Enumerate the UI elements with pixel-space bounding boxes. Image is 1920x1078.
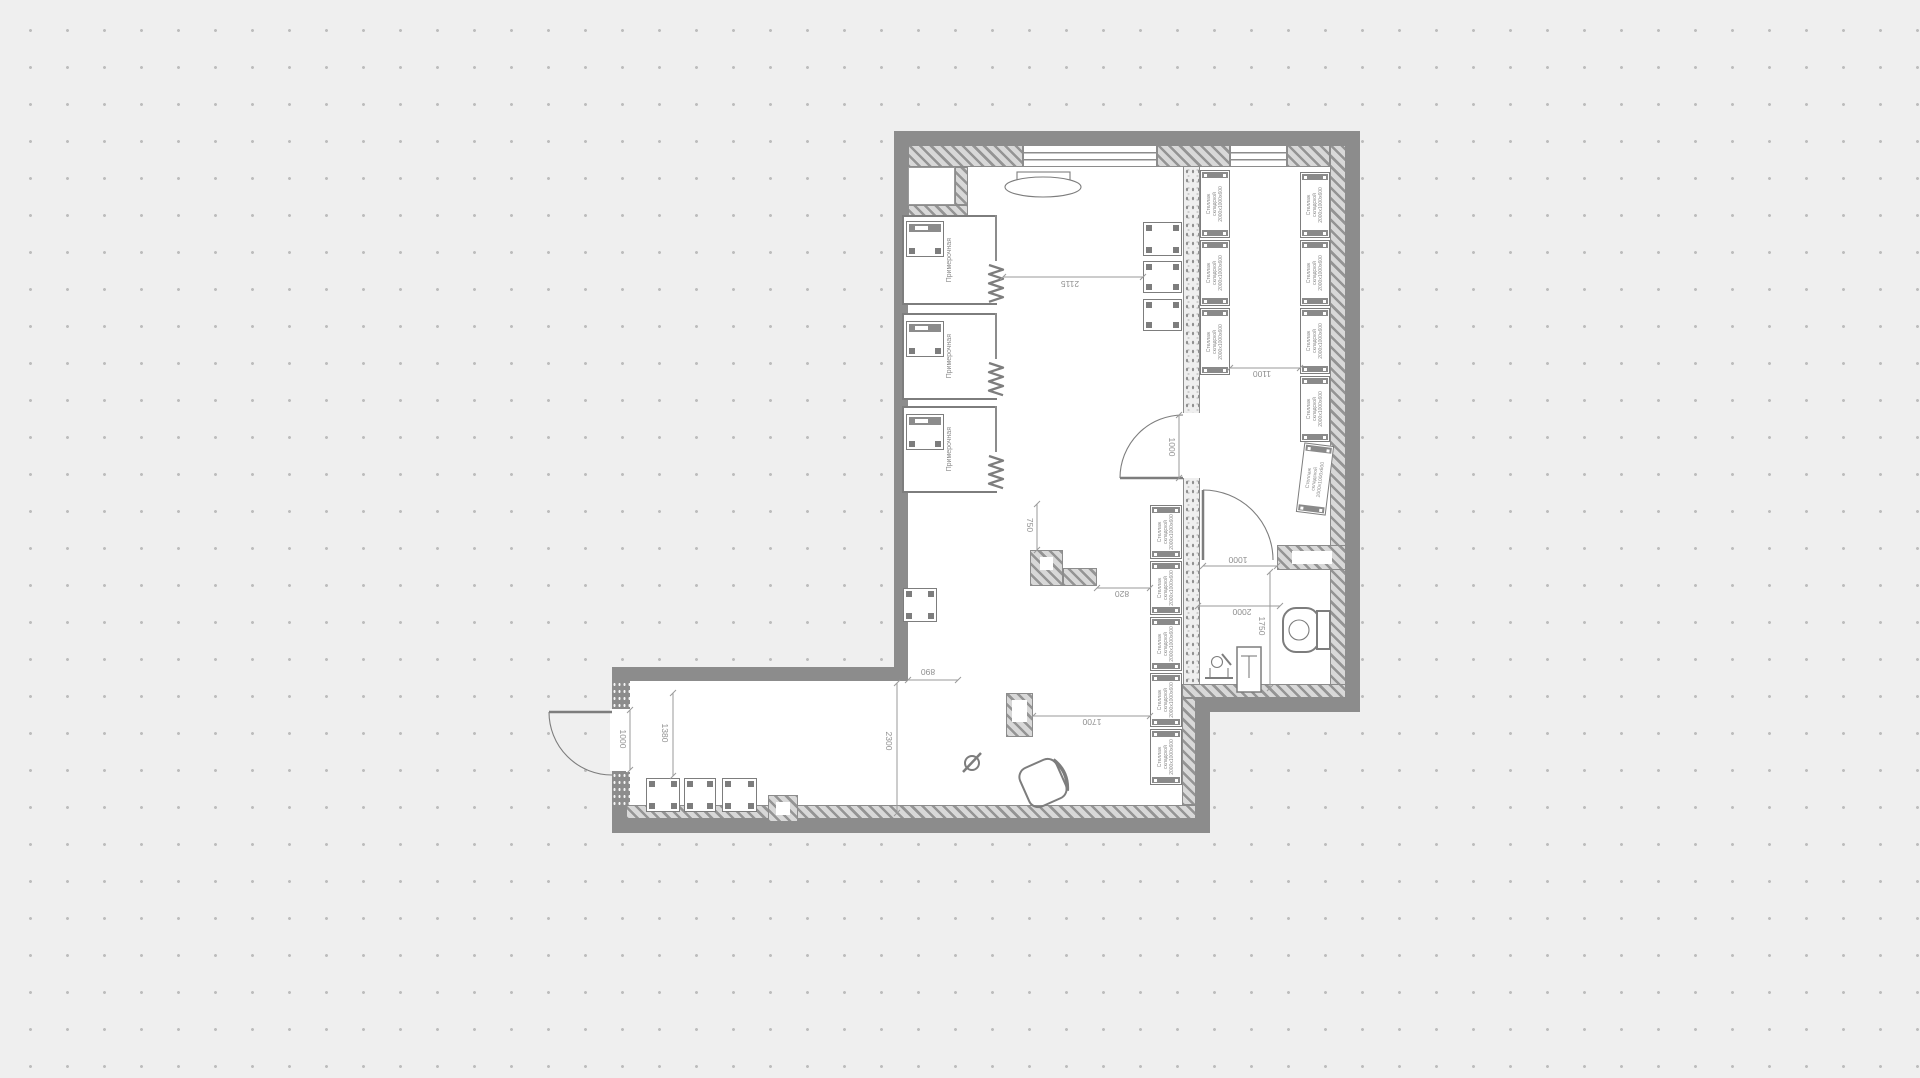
wing-table [722,778,757,812]
floor-plan: Стол для проверки товара Стол для провер… [0,0,1920,1078]
table-corner [725,803,731,809]
shelf-end-cap [1152,551,1180,557]
storage-shelf-label: Стеллаж складской 2000х1000х600 [1306,391,1324,427]
entry-pier-bottom [612,772,630,805]
storage-shelf-unit: Стеллаж складской 2000х1000х600 [1300,308,1330,374]
table-corner [687,803,693,809]
table-corner [928,613,934,619]
table-corner [935,348,941,354]
storage-shelf-unit: Стеллаж складской 2000х1000х600 [1150,673,1182,727]
storage-shelf-label: Стеллаж складской 2000х1000х600 [1157,570,1175,606]
entry-door-arc [549,712,612,775]
storage-shelf-label: Стеллаж складской 2000х1000х600 [1157,514,1175,550]
storage-shelf-label: Стеллаж складской 2000х1000х600 [1306,187,1324,223]
table-corner [935,441,941,447]
storage-shelf-label: Стеллаж складской 2000х1000х600 [1157,739,1175,775]
bench-seat-bar [909,324,941,332]
bench-seat-bar [909,417,941,425]
shelf-end-cap [1202,298,1228,304]
shelf-end-cap [1302,310,1328,316]
table-corner [909,348,915,354]
shelf-end-cap [1152,607,1180,613]
shelf-end-cap [1302,298,1328,304]
storage-shelf-label: Стеллаж складской 2000х1000х600 [1306,323,1324,359]
storage-shelf-label: Стеллаж складской 2000х1000х600 [1157,626,1175,662]
storage-shelf-label: Стеллаж складской 2000х1000х600 [1206,255,1224,291]
partition-lower [1183,478,1200,684]
fitting-room-right-wall [995,313,997,359]
shelf-end-cap [1305,445,1332,454]
fitting-bench [906,321,944,357]
storage-shelf-unit: Стеллаж складской 2000х1000х600 [1300,240,1330,306]
dimension-label: 1000 [618,730,628,749]
shelf-end-cap [1202,230,1228,236]
table-corner [748,803,754,809]
column-check-hole [1040,557,1053,570]
shelf-end-cap [1152,719,1180,725]
wall-wing-right [1196,698,1210,819]
partition-upper [1183,167,1200,413]
table-corner [1146,322,1152,328]
wall-lining-bottom-right [1182,684,1346,698]
check-table-seat [903,588,937,622]
entry-pier-top [612,681,630,709]
table-corner [1146,302,1152,308]
storage-shelf-unit: Стеллаж складской 2000х1000х600 [1200,308,1230,375]
dimension-label: 1380 [660,724,670,743]
table-corner [707,803,713,809]
table-corner [707,781,713,787]
shelf-end-cap [1302,378,1328,384]
wall-bottom-right-section [1196,698,1360,712]
wall-lining-top-2 [1157,145,1230,167]
shelf-end-cap [1152,507,1180,513]
window-1 [1023,145,1157,167]
storage-shelf-unit: Стеллаж складской 2000х1000х600 [1150,561,1182,615]
window-2 [1230,145,1287,167]
column-wing-hole [776,802,790,815]
table-corner [1173,302,1179,308]
table-corner [906,613,912,619]
shelf-end-cap [1302,242,1328,248]
table-corner [1173,322,1179,328]
shelf-end-cap [1152,675,1180,681]
table-corner [909,441,915,447]
toilet-wall-inset [1292,551,1332,564]
table-corner [909,248,915,254]
dimension-label: 1750 [1257,617,1267,636]
storage-shelf-unit: Стеллаж складской 2000х1000х600 [1300,172,1330,238]
fitting-room-label: Примерочная [946,334,954,378]
column-check-arm [1063,568,1097,586]
table-corner [725,781,731,787]
shelf-end-cap [1298,504,1325,513]
wing-table [646,778,680,812]
shelf-end-cap [1302,174,1328,180]
wall-wing-top [612,667,908,681]
table-corner [935,248,941,254]
shelf-end-cap [1202,242,1228,248]
table-corner [1173,225,1179,231]
storage-shelf-label: Стеллаж складской 2000х1000х600 [1157,682,1175,718]
storage-shelf-label: Стеллаж складской 2000х1000х600 [1304,460,1326,498]
display-table [1143,299,1182,331]
storage-shelf-label: Стеллаж складской 2000х1000х600 [1206,324,1224,360]
shelf-end-cap [1152,731,1180,737]
dimension-label: 2300 [884,732,894,751]
table-corner [906,591,912,597]
storage-shelf-unit: Стеллаж складской 2000х1000х600 [1150,617,1182,671]
table-corner [1146,284,1152,290]
table-corner [671,781,677,787]
dimension-label: 2115 [1061,279,1079,289]
wall-wing-bottom [612,819,1210,833]
table-corner [687,781,693,787]
wall-lining-wing-right [1182,698,1196,805]
fitting-room-right-wall [995,406,997,452]
shelf-end-cap [1202,367,1228,373]
storage-shelf-unit: Стеллаж складской 2000х1000х600 [1150,729,1182,785]
storage-shelf-unit: Стеллаж складской 2000х1000х600 [1150,505,1182,559]
table-corner [671,803,677,809]
shelf-end-cap [1152,563,1180,569]
dimension-label: 820 [1115,589,1129,599]
wall-lining-right [1330,145,1346,698]
vestibule-wall-right [955,167,968,205]
fitting-room-label: Примерочная [946,238,954,282]
table-corner [1173,264,1179,270]
fitting-bench [906,221,944,257]
fitting-bench [906,414,944,450]
wall-lining-top-1 [908,145,1023,167]
shelf-end-cap [1152,777,1180,783]
table-corner [1146,247,1152,253]
shelf-end-cap [1302,230,1328,236]
canvas: { "plan": { "texts": { "check_table": "С… [0,0,1920,1078]
column-counter-hole [1012,700,1027,722]
fitting-room-label: Примерочная [946,427,954,471]
table-corner [748,781,754,787]
dimension-label: 1000 [1167,438,1177,457]
display-table [1143,222,1182,256]
storage-shelf-unit: Стеллаж складской 2000х1000х600 [1200,170,1230,238]
dimension-label: 750 [1025,518,1035,532]
shelf-end-cap [1152,619,1180,625]
wall-top [894,131,1360,145]
fitting-room-right-wall [995,215,997,261]
vestibule-niche [908,167,955,205]
storage-shelf-unit: Стеллаж складской 2000х1000х600 [1300,376,1330,442]
table-corner [649,781,655,787]
wing-table [684,778,716,812]
dimension-label: 1000 [1229,555,1248,565]
dimension-label: 1100 [1253,369,1271,379]
storage-shelf-unit: Стеллаж складской 2000х1000х600 [1200,240,1230,306]
table-corner [1146,264,1152,270]
dimension-label: 890 [921,667,935,677]
storage-shelf-label: Стеллаж складской 2000х1000х600 [1206,186,1224,222]
dimension-label: 1700 [1083,717,1102,727]
table-corner [1173,247,1179,253]
table-corner [1173,284,1179,290]
storage-shelf-label: Стеллаж складской 2000х1000х600 [1306,255,1324,291]
bench-seat-bar [909,224,941,232]
table-corner [1146,225,1152,231]
table-corner [649,803,655,809]
display-table [1143,261,1182,293]
table-corner [928,591,934,597]
wall-right [1346,131,1360,712]
shelf-end-cap [1202,310,1228,316]
wall-lining-top-3 [1287,145,1330,167]
shelf-end-cap [1302,434,1328,440]
shelf-end-cap [1152,663,1180,669]
shelf-end-cap [1202,172,1228,178]
dimension-label: 2000 [1233,607,1252,617]
shelf-end-cap [1302,366,1328,372]
